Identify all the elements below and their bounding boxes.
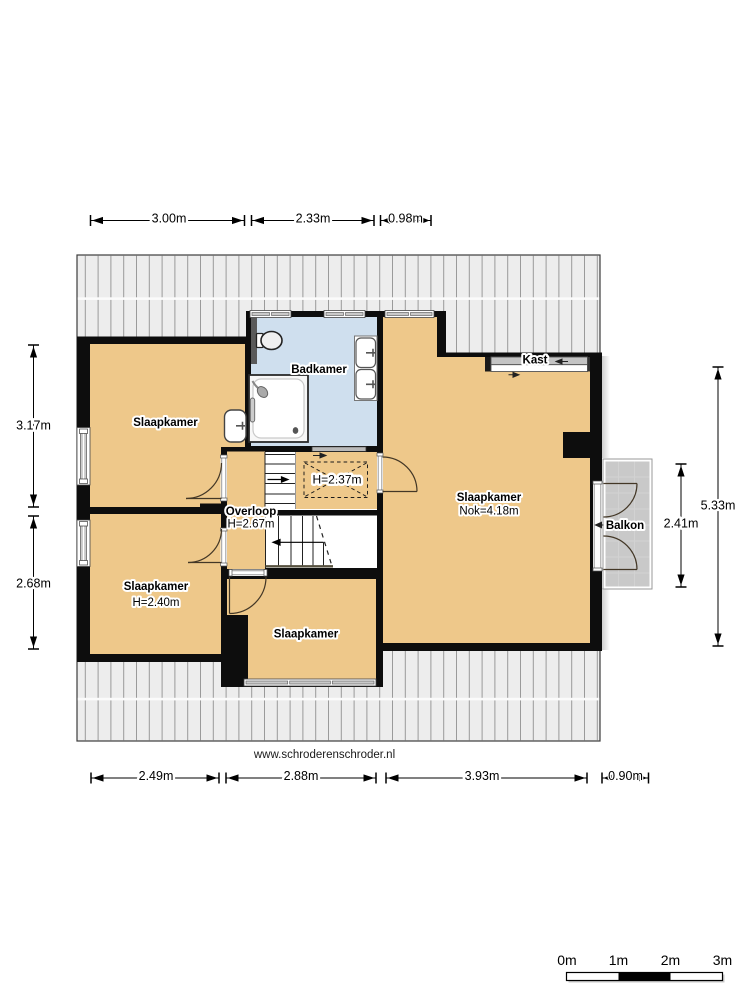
svg-text:3.93m: 3.93m [465,769,500,783]
svg-text:Slaapkamer: Slaapkamer [457,492,522,504]
svg-text:Slaapkamer: Slaapkamer [124,581,189,593]
svg-text:0.98m: 0.98m [388,212,423,226]
svg-text:2.88m: 2.88m [284,769,319,783]
svg-text:2.41m: 2.41m [664,516,699,530]
svg-text:Badkamer: Badkamer [291,364,347,376]
svg-text:3.00m: 3.00m [152,212,187,226]
svg-text:Balkon: Balkon [606,520,644,532]
svg-text:1m: 1m [609,952,628,968]
svg-text:0.90m: 0.90m [608,769,643,783]
svg-text:2m: 2m [661,952,680,968]
svg-text:H=2.37m: H=2.37m [312,473,361,487]
svg-text:H=2.67m: H=2.67m [228,519,275,531]
svg-text:0m: 0m [557,952,576,968]
svg-text:www.schroderenschroder.nl: www.schroderenschroder.nl [253,749,395,761]
svg-text:2.68m: 2.68m [16,576,51,590]
svg-text:Slaapkamer: Slaapkamer [274,629,339,641]
svg-text:2.33m: 2.33m [296,212,331,226]
svg-text:3.17m: 3.17m [16,418,51,432]
svg-text:Slaapkamer: Slaapkamer [133,417,198,429]
svg-text:Overloop: Overloop [226,506,276,518]
svg-text:2.49m: 2.49m [139,769,174,783]
svg-text:Nok=4.18m: Nok=4.18m [459,506,518,518]
svg-text:H=2.40m: H=2.40m [133,597,180,609]
svg-text:3m: 3m [713,952,732,968]
svg-text:5.33m: 5.33m [701,498,736,512]
svg-text:Kast: Kast [523,355,548,367]
